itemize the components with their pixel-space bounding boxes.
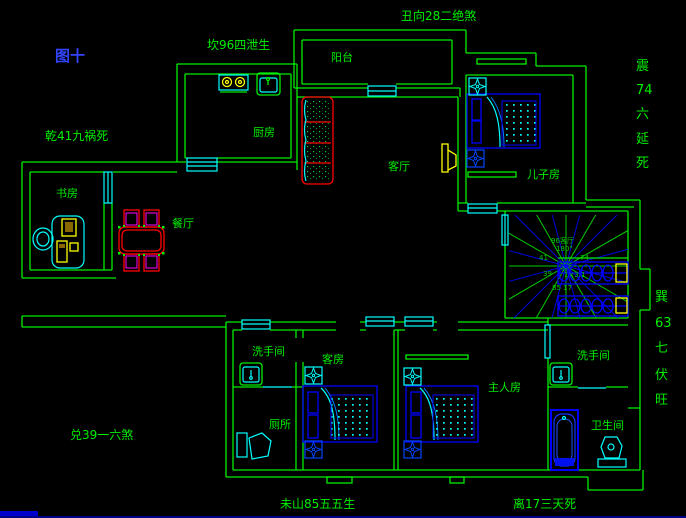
fengshui-label-top: 坎96四泄生 — [207, 38, 270, 52]
ac-unit-icon — [467, 150, 484, 167]
room-label-study: 书房 — [56, 187, 78, 200]
svg-text:六: 六 — [636, 107, 649, 122]
sink-icon — [257, 73, 280, 95]
fengshui-label-upper-left: 乾41九祸死 — [45, 128, 108, 143]
bed — [406, 386, 478, 442]
svg-text:旺: 旺 — [655, 393, 668, 408]
floorplan-drawing[interactable]: 96客厅 180° 41 74 39 1×3.1 85 17 — [0, 0, 686, 518]
stairs-num-center: 1×3.1 — [564, 271, 585, 279]
cad-floorplan-screenshot: 96客厅 180° 41 74 39 1×3.1 85 17 — [0, 0, 686, 518]
fengshui-label-bottom-right: 离17三天死 — [513, 496, 576, 511]
room-label-toilet: 厕所 — [269, 418, 291, 431]
room-label-guest-room: 客房 — [322, 352, 344, 366]
door-threshold — [327, 477, 352, 483]
ac-unit-icon — [305, 367, 322, 384]
washbasin-icon — [550, 363, 572, 385]
window — [366, 317, 394, 326]
dining-chair — [143, 210, 160, 227]
bed — [467, 94, 540, 148]
svg-text:延: 延 — [636, 132, 649, 147]
svg-text:七: 七 — [655, 341, 668, 356]
dining-table — [118, 226, 165, 255]
stairs-num-ne: 74 — [580, 254, 589, 262]
room-label-kitchen: 厨房 — [253, 126, 275, 139]
window — [242, 320, 270, 329]
window — [104, 172, 112, 203]
window — [187, 158, 217, 171]
stairs-num-s: 85 17 — [552, 284, 572, 292]
room-label-bathroom: 卫生间 — [591, 418, 624, 432]
ac-unit-icon — [404, 441, 421, 458]
toilet-icon — [598, 437, 626, 467]
stove-icon — [219, 75, 248, 92]
svg-text:伏: 伏 — [655, 368, 668, 383]
svg-text:74: 74 — [636, 83, 653, 98]
room-label-washroom-left: 洗手间 — [252, 344, 285, 358]
stairs-num-nw: 41 — [539, 254, 548, 262]
compass-center — [564, 264, 568, 268]
toilet-icon — [237, 433, 271, 459]
door-threshold — [450, 477, 464, 483]
svg-text:63: 63 — [655, 316, 672, 331]
fengshui-label-bottom-left: 未山85五五生 — [280, 497, 355, 511]
room-label-washroom-right: 洗手间 — [577, 348, 610, 362]
ac-unit-icon — [469, 78, 486, 95]
tv — [442, 144, 456, 172]
dining-chair — [123, 254, 140, 271]
desk-chair — [33, 228, 53, 250]
ac-unit-icon — [404, 368, 421, 385]
fengshui-label-top-right: 丑向28二绝煞 — [401, 8, 476, 23]
stairs-label-line2: 180° — [556, 245, 573, 253]
bed — [303, 386, 377, 442]
window — [405, 317, 433, 326]
room-label-living-room: 客厅 — [388, 159, 410, 173]
window — [468, 204, 497, 213]
sofa — [302, 97, 333, 184]
fengshui-label-right-lower: 巽 63 七 伏 旺 — [655, 290, 672, 408]
svg-text:死: 死 — [636, 156, 649, 171]
svg-text:震: 震 — [636, 59, 649, 74]
window — [368, 86, 396, 96]
window — [502, 215, 508, 245]
stairs-label-line1: 96客厅 — [551, 236, 574, 245]
room-label-master-room: 主人房 — [488, 381, 521, 394]
room-label-dining: 餐厅 — [172, 216, 194, 230]
computer — [57, 219, 78, 262]
svg-text:巽: 巽 — [655, 290, 668, 305]
figure-label: 图十 — [55, 47, 85, 65]
fengshui-label-lower-left: 兑39一六煞 — [70, 428, 133, 442]
washbasin-icon — [240, 363, 262, 385]
stairs-num-w: 39 — [543, 270, 552, 278]
dining-chair — [143, 254, 160, 271]
ac-unit-icon — [305, 441, 322, 458]
dining-chair — [123, 210, 140, 227]
room-label-sons-room: 儿子房 — [527, 168, 560, 181]
fengshui-label-right-upper: 震 74 六 延 死 — [636, 59, 653, 171]
room-label-balcony: 阳台 — [331, 50, 353, 64]
bathtub-icon — [551, 410, 578, 470]
